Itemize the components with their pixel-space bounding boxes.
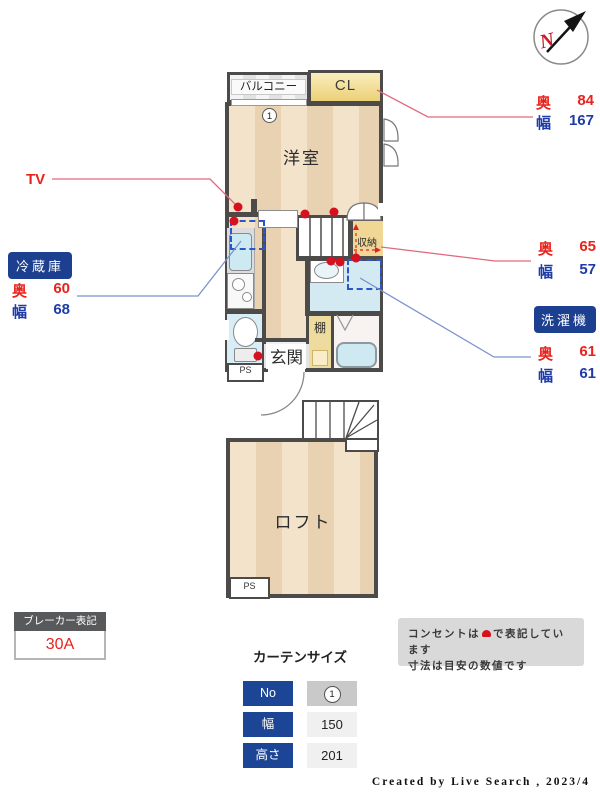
dim-label: 奥 bbox=[536, 92, 551, 113]
notes-line1-before: コンセントは bbox=[408, 628, 480, 640]
window-number-circle: 1 bbox=[262, 108, 277, 123]
breaker-value: 30A bbox=[14, 631, 106, 660]
dim-value: 167 bbox=[569, 112, 594, 133]
wall-washroom-left bbox=[305, 258, 310, 313]
dim-label: 幅 bbox=[536, 112, 551, 133]
stove-burner-2 bbox=[242, 292, 252, 302]
curtain-row-height-label: 高さ bbox=[243, 743, 293, 768]
window-fan-2 bbox=[384, 144, 398, 166]
washer-badge: 洗濯機 bbox=[534, 306, 596, 333]
dim-label: 幅 bbox=[12, 301, 27, 322]
leader-washer bbox=[360, 278, 531, 357]
washbasin-bowl bbox=[314, 262, 339, 279]
leader-fridge bbox=[77, 241, 241, 296]
tv-label: TV bbox=[26, 171, 45, 188]
breaker-title: ブレーカー表記 bbox=[14, 612, 106, 631]
washer-space bbox=[347, 259, 382, 290]
outlet-icon bbox=[482, 630, 491, 637]
notes-box: コンセントはで表記しています 寸法は目安の数値です bbox=[398, 618, 584, 666]
ps-label-1f: PS bbox=[239, 365, 251, 375]
leader-storage bbox=[381, 247, 531, 261]
stairs-loft-landing bbox=[345, 438, 379, 452]
compass-arrow-head bbox=[564, 11, 586, 32]
closet-width-dim: 幅 167 bbox=[536, 112, 594, 133]
entrance-label: 玄関 bbox=[264, 344, 309, 368]
fridge-depth-dim: 奥 60 bbox=[12, 280, 70, 301]
dim-label: 幅 bbox=[538, 365, 553, 386]
fridge-badge: 冷蔵庫 bbox=[8, 252, 72, 279]
credit-text: Created by Live Search , 2023/4 bbox=[372, 776, 590, 788]
dim-value: 61 bbox=[579, 343, 596, 364]
shelf-lower-box bbox=[312, 350, 328, 366]
window-number-text: 1 bbox=[267, 111, 272, 122]
balcony-label-text: バルコニー bbox=[240, 81, 297, 93]
dim-value: 61 bbox=[579, 365, 596, 386]
ps-box-1f: PS bbox=[227, 363, 264, 382]
curtain-row-no-value: 1 bbox=[307, 681, 357, 706]
leader-closet bbox=[377, 90, 533, 117]
fridge-space bbox=[230, 220, 265, 250]
toilet-tank bbox=[234, 348, 257, 362]
loft-label: ロフト bbox=[268, 508, 338, 533]
dim-label: 奥 bbox=[12, 280, 27, 301]
dim-value: 65 bbox=[579, 238, 596, 259]
shelf-label: 棚 bbox=[310, 319, 330, 336]
closet-depth-dim: 奥 84 bbox=[536, 92, 594, 113]
storage-width-dim: 幅 57 bbox=[538, 261, 596, 282]
wall-kitchen-jog bbox=[251, 199, 257, 216]
curtain-row-width-label: 幅 bbox=[243, 712, 293, 737]
floorplan-page: バルコニー CL 1 洋室 収納 PS 玄関 棚 bbox=[0, 0, 600, 800]
wall-kitchen-bottom bbox=[225, 309, 262, 314]
notes-line-1: コンセントはで表記しています bbox=[408, 626, 574, 658]
western-room-label: 洋室 bbox=[252, 144, 352, 169]
curtain-no-circle: 1 bbox=[324, 686, 341, 703]
balcony-label: バルコニー bbox=[231, 79, 306, 95]
dim-value: 84 bbox=[577, 92, 594, 113]
toilet-bowl bbox=[233, 317, 258, 347]
window-fan-1 bbox=[384, 119, 398, 141]
ps-box-loft: PS bbox=[229, 577, 270, 599]
storage-depth-dim: 奥 65 bbox=[538, 238, 596, 259]
dim-label: 幅 bbox=[538, 261, 553, 282]
dim-value: 60 bbox=[53, 280, 70, 301]
washer-width-dim: 幅 61 bbox=[538, 365, 596, 386]
leader-tv bbox=[52, 179, 237, 206]
fridge-width-dim: 幅 68 bbox=[12, 301, 70, 322]
dim-value: 57 bbox=[579, 261, 596, 282]
entrance-door-opening bbox=[268, 368, 305, 374]
entrance-door-arc bbox=[261, 372, 304, 415]
breaker-box: ブレーカー表記 30A bbox=[14, 612, 106, 660]
ps-label-loft: PS bbox=[243, 581, 255, 591]
dim-label: 奥 bbox=[538, 343, 553, 364]
wall-entrance-top bbox=[255, 338, 308, 342]
dim-label: 奥 bbox=[538, 238, 553, 259]
stove-burner-1 bbox=[232, 278, 245, 291]
curtain-row-height-value: 201 bbox=[307, 743, 357, 768]
stairs-loft bbox=[302, 400, 379, 440]
entrance-label-text: 玄関 bbox=[270, 349, 303, 367]
washer-depth-dim: 奥 61 bbox=[538, 343, 596, 364]
wall-washroom-bottom bbox=[305, 311, 383, 316]
bathtub bbox=[336, 342, 377, 368]
window-band-top bbox=[231, 99, 307, 106]
curtain-row-width-value: 150 bbox=[307, 712, 357, 737]
storage-label: 収納 bbox=[350, 234, 384, 249]
compass-north-letter: N bbox=[537, 29, 557, 55]
curtain-row-no-label: No bbox=[243, 681, 293, 706]
dim-value: 68 bbox=[53, 301, 70, 322]
notes-line-2: 寸法は目安の数値です bbox=[408, 658, 574, 674]
stairs-1f bbox=[296, 215, 351, 261]
closet-label: CL bbox=[318, 77, 373, 94]
curtain-table-title: カーテンサイズ bbox=[240, 646, 360, 666]
wall-bath-left bbox=[331, 313, 334, 370]
